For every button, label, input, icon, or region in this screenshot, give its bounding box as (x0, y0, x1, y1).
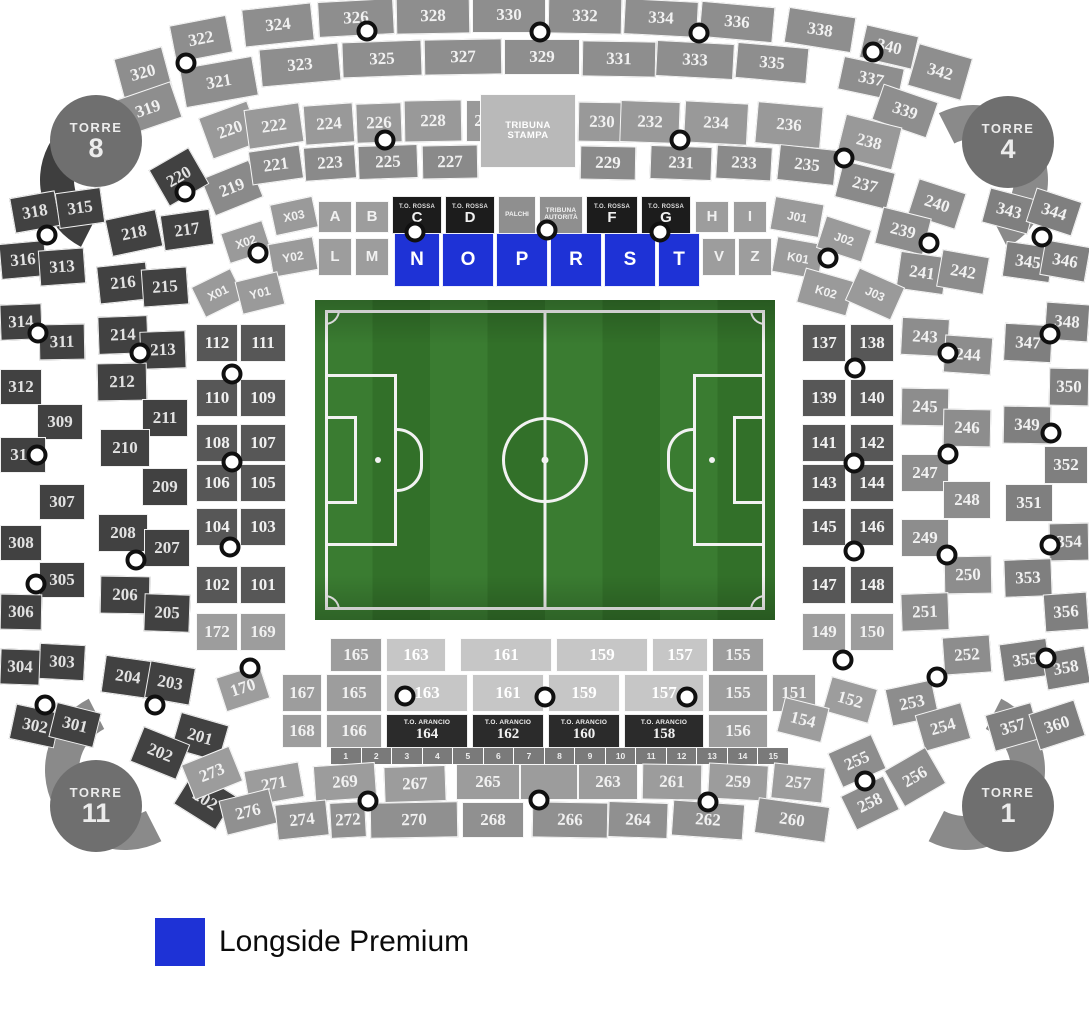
section-154[interactable]: 154 (776, 697, 829, 743)
section-145[interactable]: 145 (802, 508, 846, 546)
row-number: 4 (422, 748, 453, 764)
section-164[interactable]: T.O. ARANCIO164 (386, 714, 468, 748)
section-206[interactable]: 206 (100, 576, 151, 615)
section-251[interactable]: 251 (900, 592, 949, 632)
row-number: 8 (544, 748, 575, 764)
gate-marker (855, 771, 876, 792)
tower-4: TORRE4 (962, 96, 1054, 188)
gate-marker (395, 686, 416, 707)
section-163[interactable]: 163 (386, 638, 446, 672)
legend-swatch (155, 918, 205, 966)
section-242[interactable]: 242 (936, 249, 990, 295)
corner-arc-top-left (325, 310, 340, 325)
section-233[interactable]: 233 (715, 145, 773, 182)
section-221[interactable]: 221 (248, 145, 304, 186)
gate-marker (130, 343, 151, 364)
section-158[interactable]: T.O. ARANCIO158 (624, 714, 704, 748)
section-328[interactable]: 328 (396, 0, 471, 35)
gate-marker (175, 182, 196, 203)
gate-marker (375, 130, 396, 151)
section-265[interactable]: 265 (456, 764, 520, 800)
section-a[interactable]: A (318, 201, 352, 233)
section-103[interactable]: 103 (240, 508, 286, 546)
section-307[interactable]: 307 (39, 484, 85, 520)
section-155[interactable]: 155 (712, 638, 764, 672)
row-number: 13 (696, 748, 727, 764)
section-f[interactable]: T.O. ROSSAF (586, 196, 638, 234)
section-palchi[interactable]: PALCHI (498, 196, 536, 234)
section-252[interactable]: 252 (942, 634, 993, 675)
section-315[interactable]: 315 (55, 187, 106, 229)
penalty-area-right (693, 374, 765, 546)
section-312[interactable]: 312 (0, 369, 42, 405)
section-147[interactable]: 147 (802, 566, 846, 604)
row-number: 5 (452, 748, 483, 764)
gate-marker (248, 243, 269, 264)
section-356[interactable]: 356 (1043, 592, 1089, 633)
gate-marker (650, 222, 671, 243)
section-p[interactable]: P (496, 233, 548, 287)
section-112[interactable]: 112 (196, 324, 238, 362)
gate-marker (530, 22, 551, 43)
section-270[interactable]: 270 (370, 801, 459, 839)
section-stampa[interactable]: TRIBUNASTAMPA (480, 94, 576, 168)
section-x03[interactable]: X03 (269, 196, 319, 236)
section-246[interactable]: 246 (943, 409, 992, 448)
section-303[interactable]: 303 (38, 643, 86, 681)
section-161[interactable]: 161 (472, 674, 544, 712)
section-261[interactable]: 261 (642, 763, 703, 800)
tower-1: TORRE1 (962, 760, 1054, 852)
section-162[interactable]: T.O. ARANCIO162 (472, 714, 544, 748)
section-227[interactable]: 227 (422, 145, 479, 180)
gate-marker (222, 364, 243, 385)
gate-marker (222, 452, 243, 473)
row-number: 7 (513, 748, 544, 764)
section-m[interactable]: M (355, 238, 389, 276)
legend-label: Longside Premium (219, 925, 469, 959)
gate-marker (35, 695, 56, 716)
section-b[interactable]: B (355, 201, 389, 233)
gate-marker (37, 225, 58, 246)
section-111[interactable]: 111 (240, 324, 286, 362)
goal-area-right (733, 416, 765, 504)
gate-marker (529, 790, 550, 811)
section-165[interactable]: 165 (330, 638, 382, 672)
section-168[interactable]: 168 (282, 714, 322, 748)
gate-marker (844, 453, 865, 474)
section-323[interactable]: 323 (258, 43, 341, 88)
section-j01[interactable]: J01 (769, 196, 824, 238)
section-215[interactable]: 215 (141, 266, 190, 307)
corner-arc-bottom-right (750, 595, 765, 610)
gate-marker (1040, 535, 1061, 556)
row-number: 1 (330, 748, 361, 764)
gate-marker (1040, 324, 1061, 345)
gate-marker (689, 23, 710, 44)
gate-marker (28, 323, 49, 344)
section-h[interactable]: H (695, 201, 729, 233)
section-105[interactable]: 105 (240, 464, 286, 502)
section-j03[interactable]: J03 (845, 267, 905, 320)
stadium-map: 123456789101112131415 Longside Premium 3… (0, 0, 1089, 1032)
tower-8: TORRE8 (50, 95, 142, 187)
section-i[interactable]: I (733, 201, 767, 233)
gate-marker (938, 444, 959, 465)
section-325[interactable]: 325 (341, 40, 422, 79)
section-140[interactable]: 140 (850, 379, 894, 417)
section-229[interactable]: 229 (580, 146, 637, 181)
row-number: 10 (605, 748, 636, 764)
section-110[interactable]: 110 (196, 379, 238, 417)
section-159[interactable]: 159 (556, 638, 648, 672)
section-274[interactable]: 274 (274, 799, 329, 840)
section-137[interactable]: 137 (802, 324, 846, 362)
corner-arc-top-right (750, 310, 765, 325)
section-k02[interactable]: K02 (796, 268, 856, 317)
section-313[interactable]: 313 (38, 247, 86, 286)
row-number: 3 (391, 748, 422, 764)
row-number: 11 (635, 748, 666, 764)
legend: Longside Premium (155, 918, 469, 966)
section-s[interactable]: S (604, 233, 656, 287)
tower-11: TORRE11 (50, 760, 142, 852)
section-228[interactable]: 228 (404, 99, 463, 142)
section-234[interactable]: 234 (683, 100, 749, 145)
gate-marker (240, 658, 261, 679)
gate-marker (126, 550, 147, 571)
section-141[interactable]: 141 (802, 424, 846, 462)
section-342[interactable]: 342 (907, 43, 973, 101)
section-324[interactable]: 324 (241, 2, 315, 47)
corner-arc-bottom-left (325, 595, 340, 610)
section-143[interactable]: 143 (802, 464, 846, 502)
section-308[interactable]: 308 (0, 525, 42, 561)
pitch-outline (325, 310, 765, 610)
section-v[interactable]: V (702, 238, 736, 276)
center-circle (502, 417, 588, 503)
section-257[interactable]: 257 (770, 762, 825, 803)
section-138[interactable]: 138 (850, 324, 894, 362)
section-161[interactable]: 161 (460, 638, 552, 672)
penalty-spot-left (375, 457, 381, 463)
section-217[interactable]: 217 (160, 209, 215, 252)
gate-marker (698, 792, 719, 813)
section-165[interactable]: 165 (326, 674, 382, 712)
gate-marker (670, 130, 691, 151)
section-150[interactable]: 150 (850, 613, 894, 651)
gate-marker (919, 233, 940, 254)
section-209[interactable]: 209 (142, 468, 188, 506)
section-222[interactable]: 222 (243, 102, 304, 149)
center-spot (542, 457, 549, 464)
section-149[interactable]: 149 (802, 613, 846, 651)
section-d[interactable]: T.O. ROSSAD (445, 196, 495, 234)
section-360[interactable]: 360 (1028, 700, 1085, 751)
gate-marker (220, 537, 241, 558)
section-167[interactable]: 167 (282, 674, 322, 712)
gate-marker (1032, 227, 1053, 248)
section-264[interactable]: 264 (607, 801, 668, 839)
section-205[interactable]: 205 (143, 593, 190, 633)
section-260[interactable]: 260 (754, 797, 830, 843)
section-212[interactable]: 212 (97, 363, 148, 402)
gate-marker (818, 248, 839, 269)
penalty-arc-right (667, 428, 693, 492)
gate-marker (833, 650, 854, 671)
gate-marker (844, 541, 865, 562)
gate-marker (1041, 423, 1062, 444)
gate-marker (834, 148, 855, 169)
gate-marker (145, 695, 166, 716)
section-z[interactable]: Z (738, 238, 772, 276)
section-245[interactable]: 245 (901, 388, 950, 427)
section-263[interactable]: 263 (578, 764, 638, 800)
section-107[interactable]: 107 (240, 424, 286, 462)
section-351[interactable]: 351 (1005, 484, 1053, 522)
section-207[interactable]: 207 (144, 529, 190, 567)
gate-marker (937, 545, 958, 566)
section-329[interactable]: 329 (504, 39, 580, 75)
section-353[interactable]: 353 (1003, 558, 1052, 598)
row-number: 15 (757, 748, 788, 764)
section-210[interactable]: 210 (100, 429, 150, 467)
penalty-arc-left (397, 428, 423, 492)
gate-marker (176, 53, 197, 74)
gate-marker (927, 667, 948, 688)
section-333[interactable]: 333 (655, 40, 735, 80)
row-number-strip: 123456789101112131415 (330, 748, 788, 764)
section-223[interactable]: 223 (303, 144, 357, 182)
section-332[interactable]: 332 (548, 0, 623, 35)
section-248[interactable]: 248 (943, 481, 991, 519)
gate-marker (27, 445, 48, 466)
section-152[interactable]: 152 (822, 676, 878, 724)
section-169[interactable]: 169 (240, 613, 286, 651)
section-157[interactable]: 157 (652, 638, 708, 672)
section-r[interactable]: R (550, 233, 602, 287)
section-336[interactable]: 336 (699, 1, 776, 43)
section-331[interactable]: 331 (582, 40, 657, 77)
section-306[interactable]: 306 (0, 594, 42, 631)
gate-marker (863, 42, 884, 63)
penalty-area-left (325, 374, 397, 546)
section-148[interactable]: 148 (850, 566, 894, 604)
gate-marker (535, 687, 556, 708)
section-139[interactable]: 139 (802, 379, 846, 417)
gate-marker (405, 222, 426, 243)
section-236[interactable]: 236 (754, 101, 823, 149)
row-number: 12 (666, 748, 697, 764)
section-160[interactable]: T.O. ARANCIO160 (548, 714, 620, 748)
gate-marker (845, 358, 866, 379)
gate-marker (357, 21, 378, 42)
goal-area-left (325, 416, 357, 504)
section-155[interactable]: 155 (708, 674, 768, 712)
gate-marker (358, 791, 379, 812)
gate-marker (26, 574, 47, 595)
section-166[interactable]: 166 (326, 714, 382, 748)
section-335[interactable]: 335 (735, 42, 810, 84)
section-268[interactable]: 268 (462, 802, 524, 838)
section-309[interactable]: 309 (37, 404, 83, 440)
halfway-line (544, 310, 547, 610)
pitch (315, 300, 775, 620)
section-350[interactable]: 350 (1049, 368, 1089, 407)
section-304[interactable]: 304 (0, 648, 41, 685)
row-number: 9 (574, 748, 605, 764)
section-102[interactable]: 102 (196, 566, 238, 604)
section-208[interactable]: 208 (98, 514, 148, 552)
section-l[interactable]: L (318, 238, 352, 276)
gate-marker (938, 343, 959, 364)
section-o[interactable]: O (442, 233, 494, 287)
section-156[interactable]: 156 (708, 714, 768, 748)
row-number: 14 (727, 748, 758, 764)
section-224[interactable]: 224 (303, 102, 356, 145)
section-352[interactable]: 352 (1044, 446, 1088, 484)
section-y01[interactable]: Y01 (235, 271, 286, 315)
row-number: 6 (483, 748, 514, 764)
section-101[interactable]: 101 (240, 566, 286, 604)
section-267[interactable]: 267 (383, 765, 446, 803)
gate-marker (677, 687, 698, 708)
section-235[interactable]: 235 (776, 144, 837, 186)
section-159[interactable]: 159 (548, 674, 620, 712)
penalty-spot-right (709, 457, 715, 463)
section-172[interactable]: 172 (196, 613, 238, 651)
section-109[interactable]: 109 (240, 379, 286, 417)
section-327[interactable]: 327 (424, 38, 503, 75)
gate-marker (537, 220, 558, 241)
gate-marker (1036, 648, 1057, 669)
